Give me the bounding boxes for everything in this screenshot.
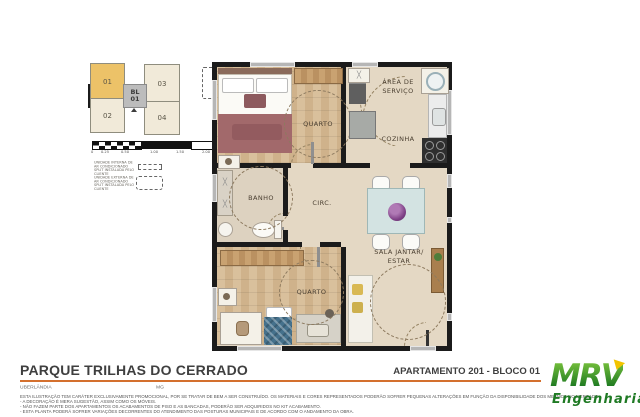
window-sala-right-1 — [447, 174, 452, 188]
scale-bar-solid — [141, 141, 191, 149]
plant-icon — [434, 253, 442, 261]
north-triangle-icon — [131, 108, 137, 112]
scale-bar-open — [191, 141, 214, 150]
mrv-logo-subtitle: Engenharia — [552, 392, 640, 407]
legend-item-1-label: UNIDADE INTERNA DE AR CONDICIONADO SPLIT… — [94, 161, 136, 176]
window-quarto2-left — [212, 287, 217, 322]
key-plan: 01 02 03 04 BL 01 — [85, 60, 185, 138]
stove-burner-icon — [436, 141, 445, 150]
bathroom-sink — [218, 222, 233, 237]
wall-banho-circ-b — [283, 230, 288, 242]
sofa — [348, 275, 373, 343]
scale-tick-2: 0.50 — [121, 150, 129, 154]
project-title: PARQUE TRILHAS DO CERRADO — [20, 362, 248, 378]
legend-item-2-text: UNIDADE EXTERNA DE AR CONDICIONADO SPLIT… — [94, 176, 136, 190]
legend: UNIDADE INTERNA DE AR CONDICIONADO SPLIT… — [94, 160, 204, 194]
wall-quarto2-top-b — [320, 242, 341, 247]
stove — [422, 138, 447, 163]
wall-quarto1-bottom-b — [313, 163, 341, 168]
wall-top — [212, 62, 452, 67]
block-label-line2: 01 — [130, 96, 139, 103]
shower-glass-x-icon: ╳ — [223, 179, 227, 186]
bed-pillow-right — [256, 78, 288, 93]
ac-internal-unit-icon — [138, 164, 162, 170]
scale-bar: 0 0.25 0.50 1.00 1.50 2.00 — [92, 141, 213, 159]
wall-cozinha-sala-a — [346, 163, 370, 168]
sofa-pillow — [352, 302, 363, 313]
circ-label: CIRC. — [304, 199, 340, 208]
city-label: UBERLÂNDIA — [20, 384, 52, 390]
apartment-plan: QUARTO ╳ ÁREA DE SERVIÇO COZINHA ╳ ╳ — [212, 62, 452, 351]
quarto1-label: QUARTO — [303, 120, 333, 129]
bed-cushion — [244, 94, 266, 108]
bed-blanket-fold — [232, 124, 282, 140]
window-quarto1-left — [212, 80, 217, 120]
legend-item-1-text: UNIDADE INTERNA DE AR CONDICIONADO SPLIT… — [94, 161, 136, 175]
area-servico-line2: SERVIÇO — [370, 87, 426, 96]
banho-turning-circle: BANHO — [229, 166, 293, 230]
kitchen-sink-icon — [432, 108, 446, 126]
scale-tick-4: 1.50 — [176, 150, 184, 154]
flower-centerpiece — [388, 203, 406, 221]
scale-tick-3: 1.00 — [150, 150, 158, 154]
scale-tick-5: 2.00 — [202, 150, 210, 154]
floor-plan-sheet: 01 02 03 04 BL 01 0 0.25 0.50 1.00 1.50 … — [0, 0, 640, 417]
unit-01-label: 01 — [103, 78, 112, 86]
desk-chair — [236, 321, 249, 336]
window-sala-right-3 — [447, 313, 452, 321]
footer-rule — [20, 380, 541, 382]
nightstand-quarto1 — [218, 155, 240, 169]
sofa-pillow — [352, 284, 363, 295]
nightstand-quarto2 — [218, 288, 237, 306]
stove-burner-icon — [436, 152, 445, 161]
bed-double — [218, 68, 292, 153]
shower-glass-x-icon: ╳ — [223, 201, 227, 208]
window-sala-right-2 — [447, 217, 452, 223]
scale-bar-checker — [92, 141, 142, 150]
window-quarto1-top — [250, 62, 295, 67]
wall-cozinha-sala-b — [410, 163, 447, 168]
quarto2-label: QUARTO — [297, 288, 327, 297]
ac-external-unit-icon — [136, 176, 163, 190]
bed-pillow-left — [222, 78, 254, 93]
city-row: UBERLÂNDIA MG — [20, 384, 320, 392]
disclaimer: ESTA ILUSTRAÇÃO TEM CARÁTER EXCLUSIVAMEN… — [20, 394, 541, 416]
banho-label: BANHO — [248, 194, 274, 203]
lamp-icon — [225, 158, 232, 165]
kitchen-counter — [428, 94, 447, 138]
state-label: MG — [156, 384, 164, 390]
dining-table — [367, 188, 425, 234]
area-servico-label: ÁREA DE SERVIÇO — [370, 78, 426, 96]
stove-burner-icon — [425, 141, 434, 150]
window-quarto2-bottom — [237, 346, 282, 351]
key-plan-unit-02: 02 — [90, 98, 125, 133]
key-plan-block-box: BL 01 — [123, 84, 147, 108]
area-servico-line1: ÁREA DE — [370, 78, 426, 87]
wall-banho-bottom — [217, 242, 302, 247]
entry-door-threshold — [410, 346, 436, 351]
quarto2-turning-circle: QUARTO — [279, 260, 344, 325]
stove-burner-icon — [425, 152, 434, 161]
unit-02-label: 02 — [103, 112, 112, 120]
window-servico-top — [352, 62, 378, 67]
laundry-tank: ╳ — [348, 68, 370, 83]
washer-drum-icon — [426, 72, 445, 91]
scale-tick-1: 0.25 — [101, 150, 109, 154]
legend-item-2-label: UNIDADE EXTERNA DE AR CONDICIONADO SPLIT… — [94, 176, 136, 191]
wardrobe-quarto2 — [220, 250, 304, 266]
apartment-block-label: APARTAMENTO 201 - BLOCO 01 — [340, 366, 540, 377]
cozinha-label: COZINHA — [372, 135, 424, 144]
sala-label: SALA JANTAR/ ESTAR — [370, 248, 428, 266]
sala-turning-circle — [370, 264, 446, 340]
wardrobe-quarto1 — [294, 68, 343, 84]
key-plan-unit-04: 04 — [144, 101, 180, 135]
lamp-icon — [223, 293, 230, 300]
desk — [220, 312, 262, 345]
scale-tick-0: 0 — [91, 150, 93, 154]
quarto1-turning-circle: QUARTO — [284, 90, 352, 158]
unit-03-label: 03 — [158, 80, 167, 88]
window-cozinha-right — [447, 90, 452, 135]
dresser-item — [307, 324, 329, 337]
key-plan-unit-03: 03 — [144, 64, 180, 103]
laundry-cabinet — [349, 83, 366, 104]
key-plan-unit-01: 01 — [90, 63, 125, 100]
unit-04-label: 04 — [158, 114, 167, 122]
sala-line1: SALA JANTAR/ — [370, 248, 428, 257]
disclaimer-line-4: - ESTA PLANTA PODERÁ SOFRER VARIAÇÕES DE… — [20, 409, 541, 414]
mrv-logo: MRV Engenharia — [546, 359, 640, 413]
bed-single-blanket — [264, 317, 292, 345]
tank-x-icon: ╳ — [357, 72, 361, 79]
